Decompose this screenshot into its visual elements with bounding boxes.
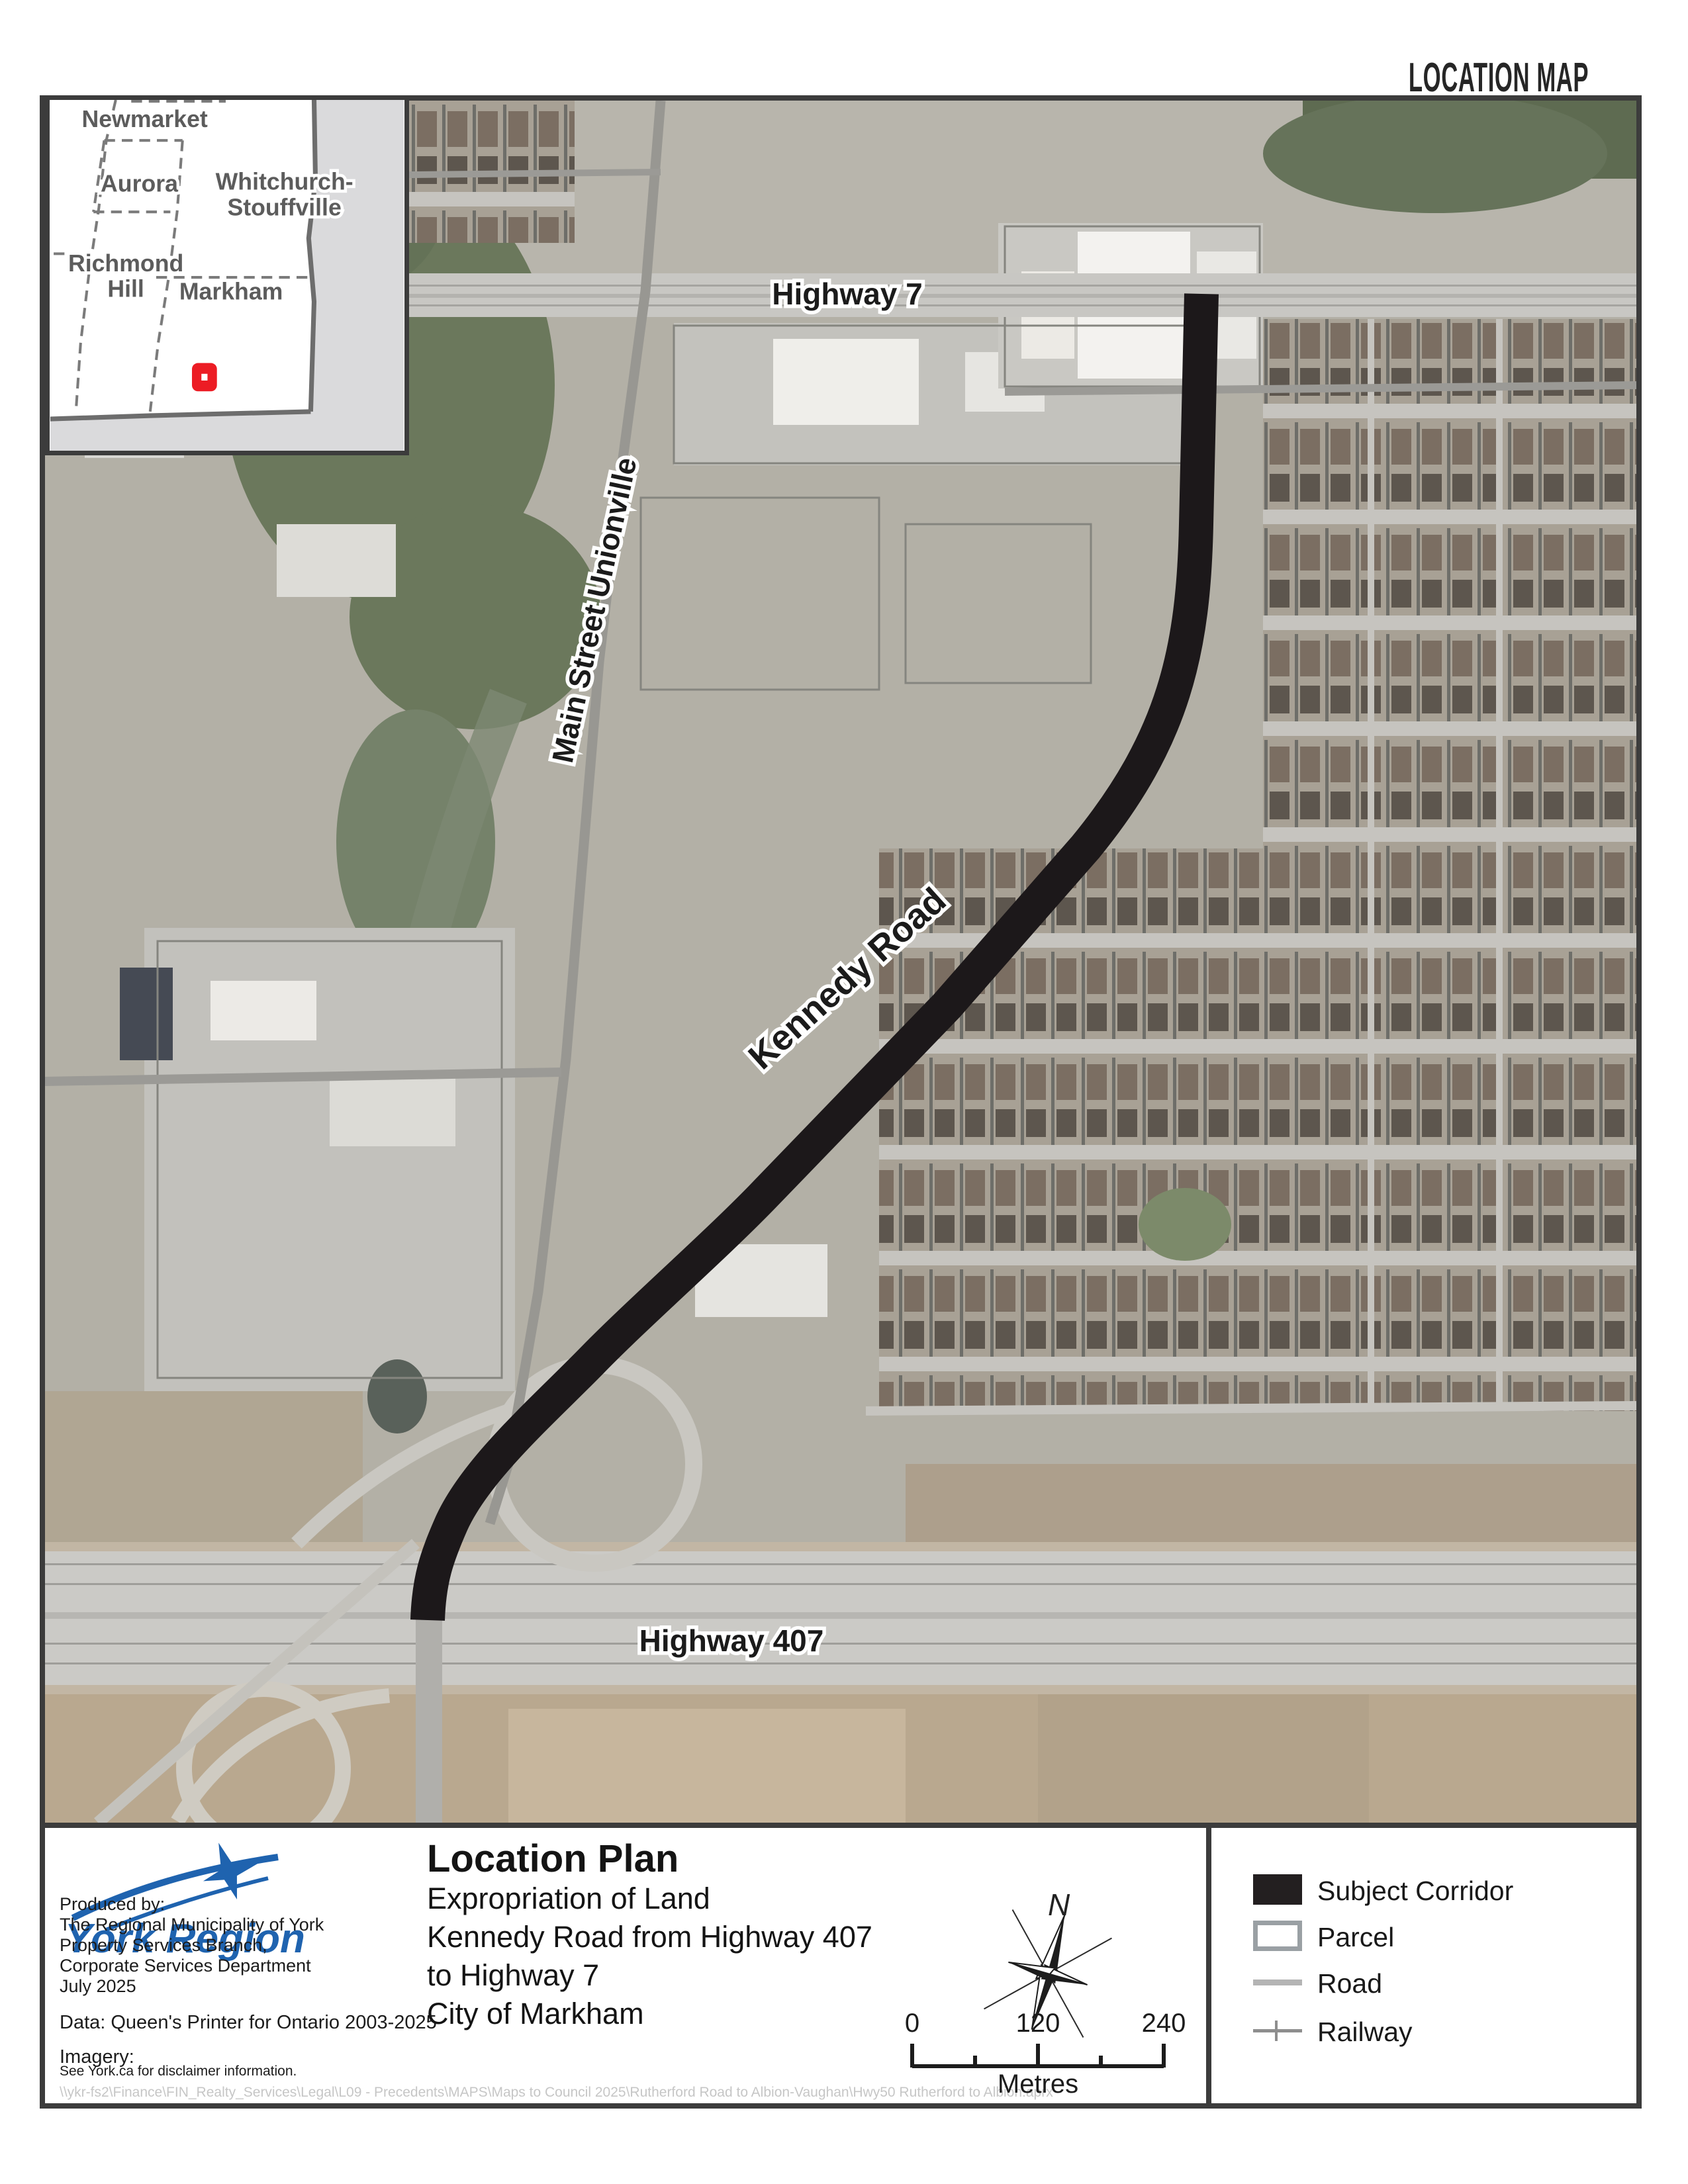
north-arrow-label: N	[1048, 1888, 1070, 1922]
legend-label-railway: Railway	[1317, 2017, 1413, 2048]
plan-subtitle-line: Kennedy Road from Highway 407	[427, 1918, 872, 1956]
footer-divider	[1206, 1828, 1211, 2103]
label-highway-407: Highway 407	[639, 1623, 824, 1658]
scale-tick-0: 0	[905, 2009, 919, 2038]
produced-by-line: Property Services Branch,	[60, 1935, 324, 1956]
produced-by-block: Produced by: The Regional Municipality o…	[60, 1894, 324, 1997]
produced-by-line: Corporate Services Department	[60, 1956, 324, 1976]
inset-map: Newmarket Aurora Whitchurch- Stouffville…	[45, 95, 409, 455]
produced-by-line: Produced by:	[60, 1894, 324, 1915]
plan-title: Location Plan	[427, 1839, 872, 1880]
legend-swatch-railway	[1253, 2029, 1302, 2032]
plan-subtitle-line: City of Markham	[427, 1995, 872, 2033]
sheet-title: LOCATION MAP	[1409, 54, 1589, 101]
plan-subtitle-line: to Highway 7	[427, 1956, 872, 1995]
legend-swatch-road	[1253, 1979, 1302, 1985]
inset-study-area-marker	[192, 363, 217, 392]
data-credit: Data: Queen's Printer for Ontario 2003-2…	[60, 2012, 437, 2034]
inset-label-richmond-1: Richmond	[68, 250, 183, 277]
footer: York Region Produced by: The Regional Mu…	[40, 1823, 1642, 2109]
legend-swatch-railway-tick	[1275, 2021, 1278, 2041]
map-sheet: LOCATION MAP	[0, 0, 1688, 2184]
legend-swatch-subject-corridor	[1253, 1874, 1302, 1905]
legend-label-subject-corridor: Subject Corridor	[1317, 1876, 1513, 1907]
inset-label-richmond-2: Hill	[107, 276, 144, 302]
produced-by-line: July 2025	[60, 1976, 324, 1997]
inset-label-whitchurch-1: Whitchurch-	[216, 169, 353, 195]
legend-label-road: Road	[1317, 1968, 1382, 1999]
inset-label-aurora: Aurora	[101, 171, 179, 197]
title-block: Location Plan Expropriation of Land Kenn…	[427, 1839, 872, 2033]
label-highway-7: Highway 7	[772, 277, 923, 311]
produced-by-line: The Regional Municipality of York	[60, 1915, 324, 1935]
inset-label-whitchurch-2: Stouffville	[227, 194, 341, 220]
scale-bar: 0 120 240 Metres	[872, 2007, 1203, 2099]
legend-label-parcel: Parcel	[1317, 1922, 1394, 1953]
inset-canvas: Newmarket Aurora Whitchurch- Stouffville…	[50, 100, 404, 451]
scale-tick-240: 240	[1142, 2009, 1186, 2038]
inset-label-markham: Markham	[179, 279, 283, 305]
legend-swatch-parcel	[1253, 1921, 1302, 1951]
plan-subtitle-line: Expropriation of Land	[427, 1880, 872, 1918]
scale-tick-120: 120	[1016, 2009, 1060, 2038]
imagery-disclaimer: See York.ca for disclaimer information.	[60, 2064, 297, 2079]
scale-unit: Metres	[998, 2070, 1078, 2099]
inset-label-newmarket: Newmarket	[82, 106, 208, 132]
